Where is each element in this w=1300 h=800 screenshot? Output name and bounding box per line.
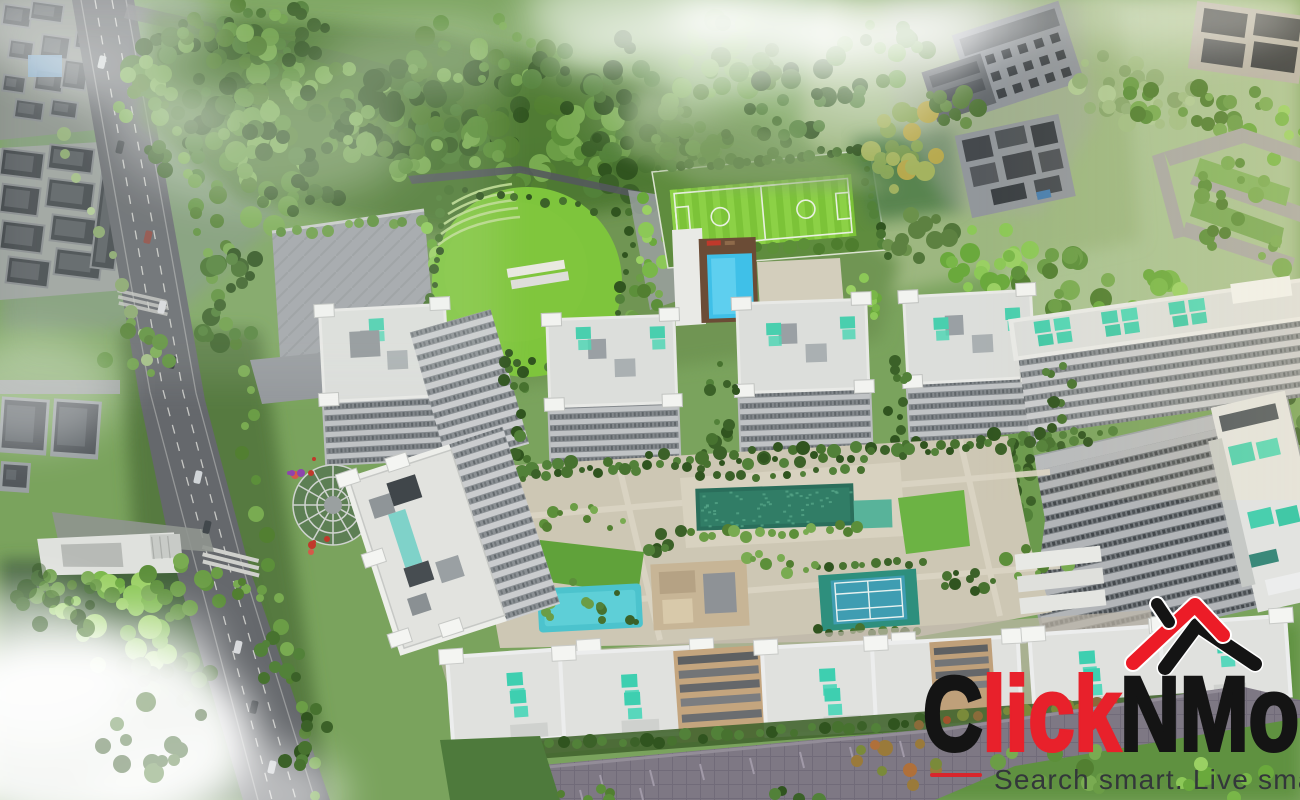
svg-text:Search smart. Live smart.: Search smart. Live smart. (994, 764, 1300, 795)
svg-text:ClickNMo: ClickNMo (923, 656, 1299, 773)
